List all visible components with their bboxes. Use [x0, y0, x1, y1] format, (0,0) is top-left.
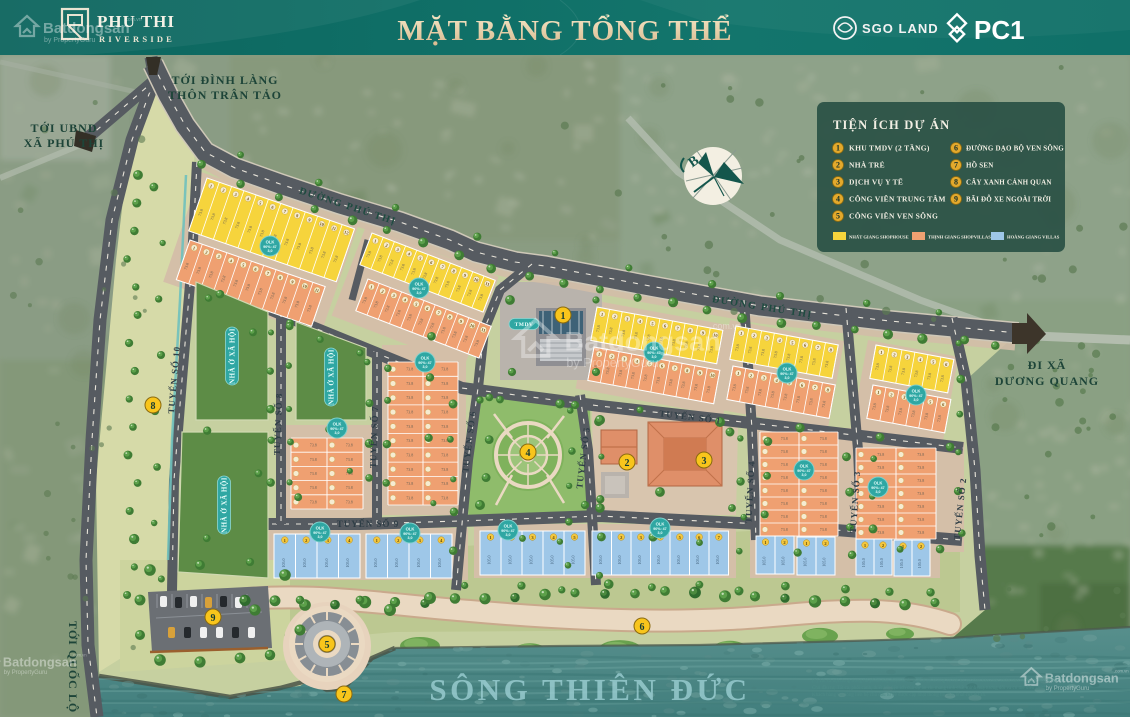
svg-text:.com.vn: .com.vn [124, 17, 142, 23]
svg-text:MẶT BẰNG TỔNG THỂ: MẶT BẰNG TỔNG THỂ [397, 13, 732, 47]
svg-text:Batdongsan: Batdongsan [43, 20, 130, 37]
svg-text:SGO LAND: SGO LAND [862, 21, 939, 36]
svg-text:by PropertyGuru: by PropertyGuru [44, 37, 95, 44]
svg-text:PC1: PC1 [974, 15, 1025, 45]
